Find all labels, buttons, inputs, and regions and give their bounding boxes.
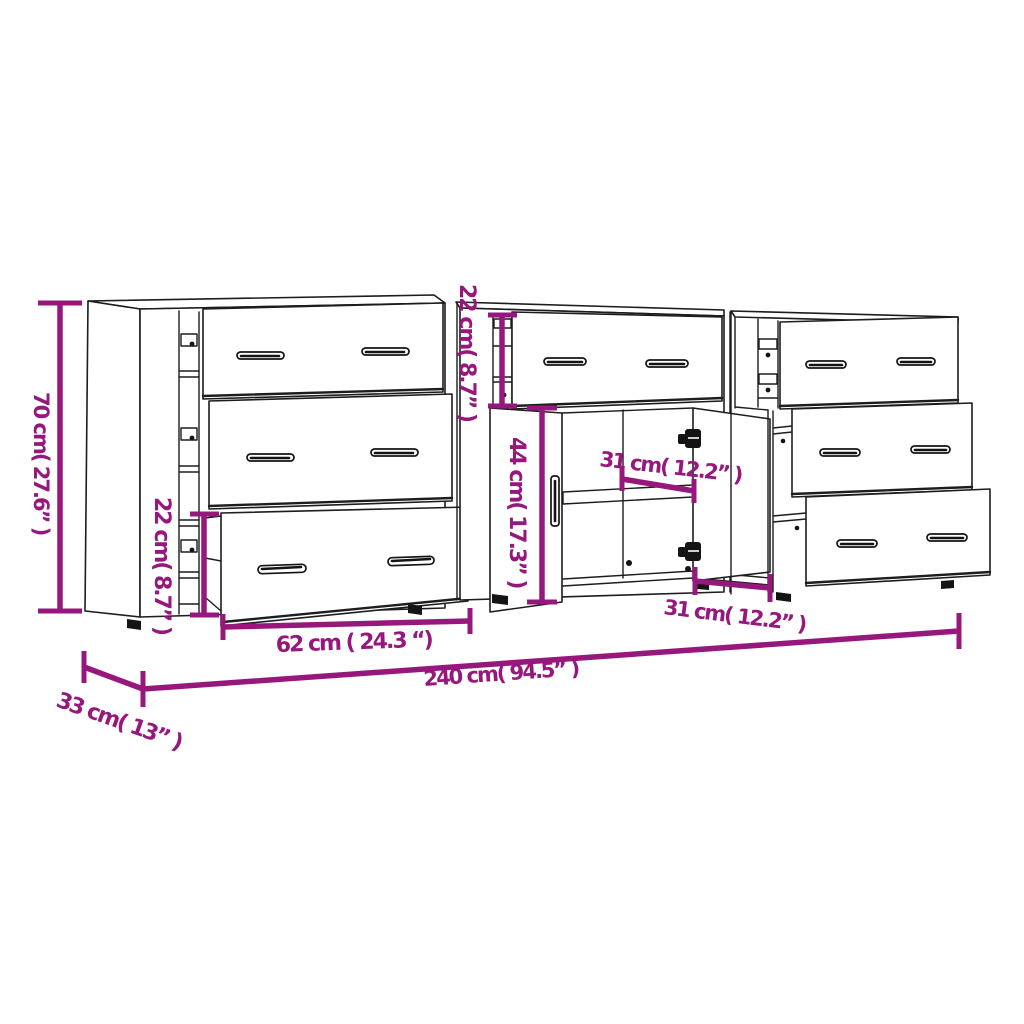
cabinet-right-drawer-bottom bbox=[806, 489, 990, 586]
dim-overall-depth-label: 33 cm( 13” ) bbox=[53, 688, 185, 756]
cabinet-left bbox=[85, 295, 468, 630]
dim-door-height-label: 44 cm( 17.3” ) bbox=[504, 437, 529, 588]
dimension-diagram: 70 cm( 27.6” ) 22 cm( 8.7” ) 22 cm( 8.7”… bbox=[0, 0, 1024, 1024]
cabinet-right-foot bbox=[941, 580, 954, 589]
dim-overall-height-label: 70 cm( 27.6” ) bbox=[29, 392, 53, 535]
cabinet-middle-drawer-top bbox=[512, 312, 722, 409]
cabinet-left-foot bbox=[127, 619, 141, 630]
cabinet-right-drawer-middle bbox=[792, 403, 972, 497]
cabinet-right-drawer-top bbox=[780, 317, 958, 409]
cabinet-left-side-panel bbox=[85, 301, 140, 617]
dim-overall-width-label: 240 cm( 94.5” ) bbox=[423, 656, 580, 691]
diagram-canvas: 70 cm( 27.6” ) 22 cm( 8.7” ) 22 cm( 8.7”… bbox=[0, 0, 1024, 1024]
dim-middle-drawer-height-label: 22 cm( 8.7” ) bbox=[454, 284, 479, 422]
dim-compartment-depth-label: 31 cm( 12.2” ) bbox=[662, 595, 807, 636]
cabinet-left-drawer-middle bbox=[209, 394, 452, 509]
dim-drawer-width-label: 62 cm ( 24.3 “) bbox=[275, 628, 433, 658]
cabinet-left-drawer-top bbox=[203, 303, 443, 399]
dim-overall-height: 70 cm( 27.6” ) bbox=[29, 303, 82, 611]
dim-overall-depth: 33 cm( 13” ) bbox=[53, 651, 185, 756]
cabinet-right-foot bbox=[776, 592, 791, 602]
cabinet-right-pin-strip bbox=[758, 319, 778, 408]
dim-left-drawer-height-label: 22 cm( 8.7” ) bbox=[149, 497, 174, 635]
